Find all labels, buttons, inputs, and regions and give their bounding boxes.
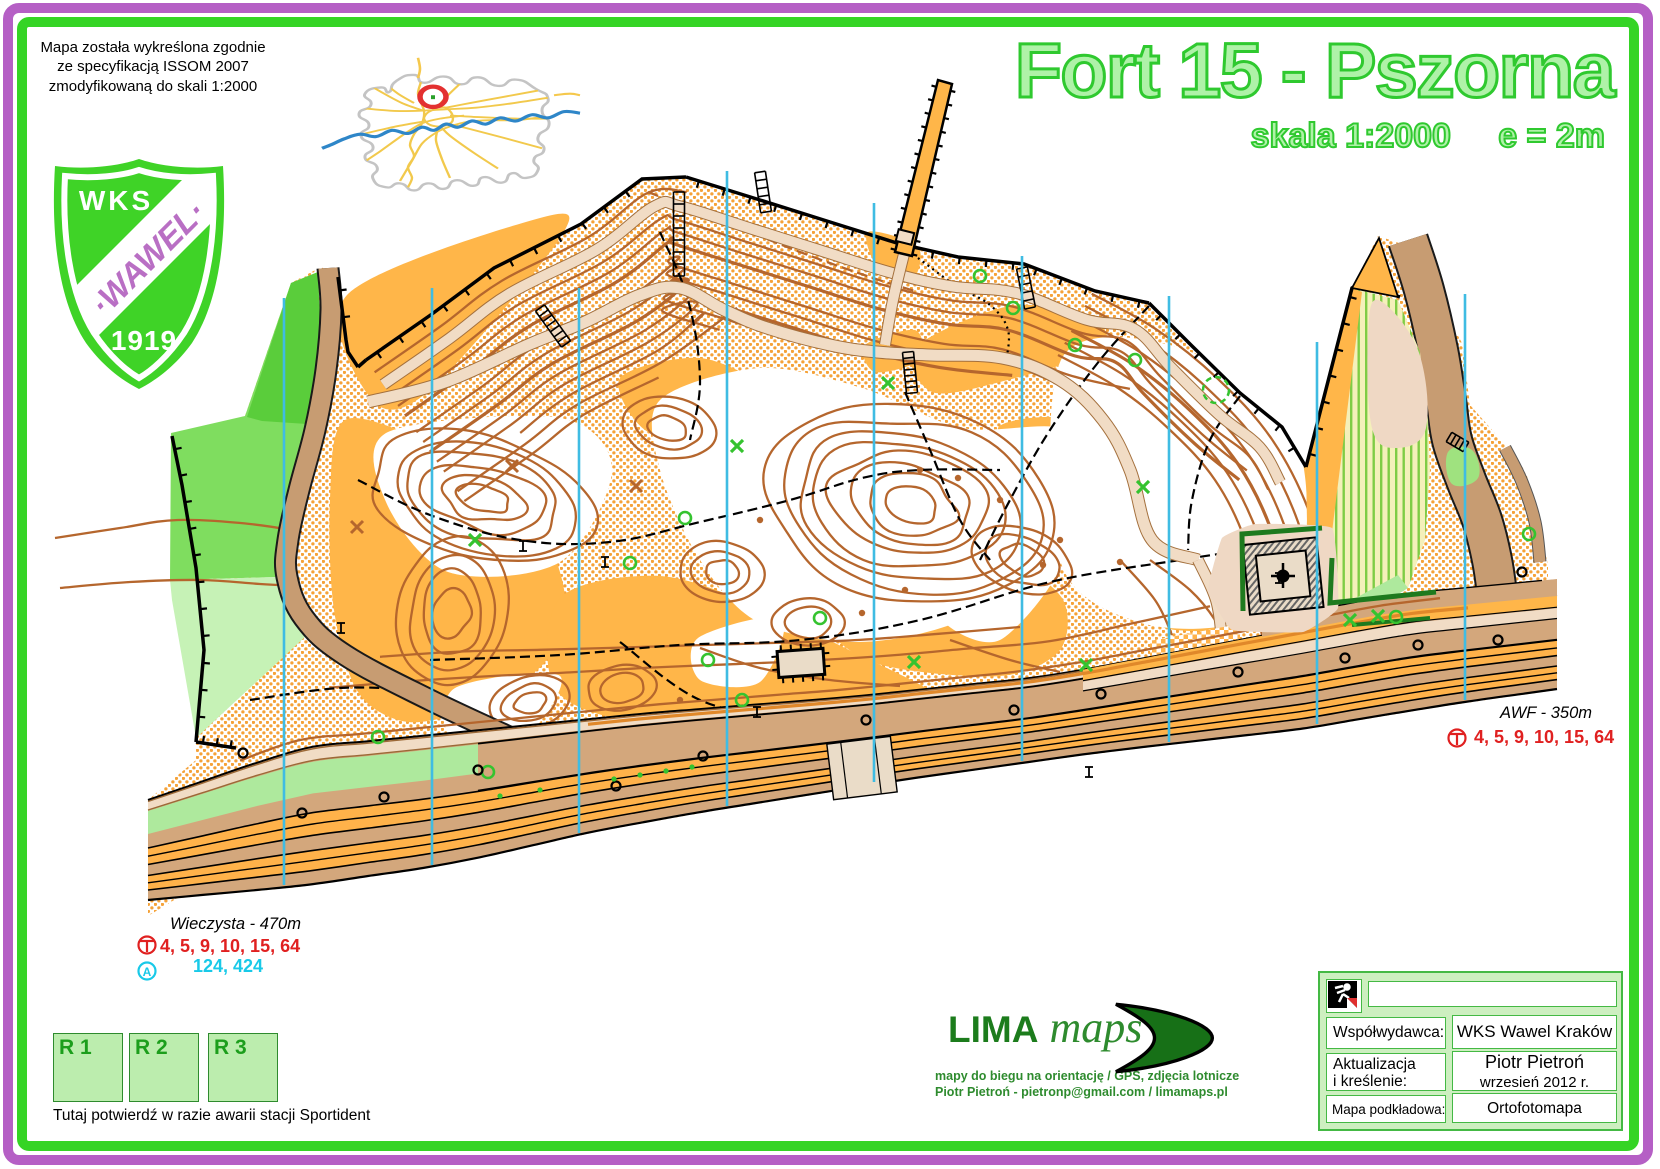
svg-text:WKS: WKS	[79, 185, 153, 216]
svg-text:1919: 1919	[111, 325, 177, 356]
svg-text:A: A	[143, 965, 152, 979]
